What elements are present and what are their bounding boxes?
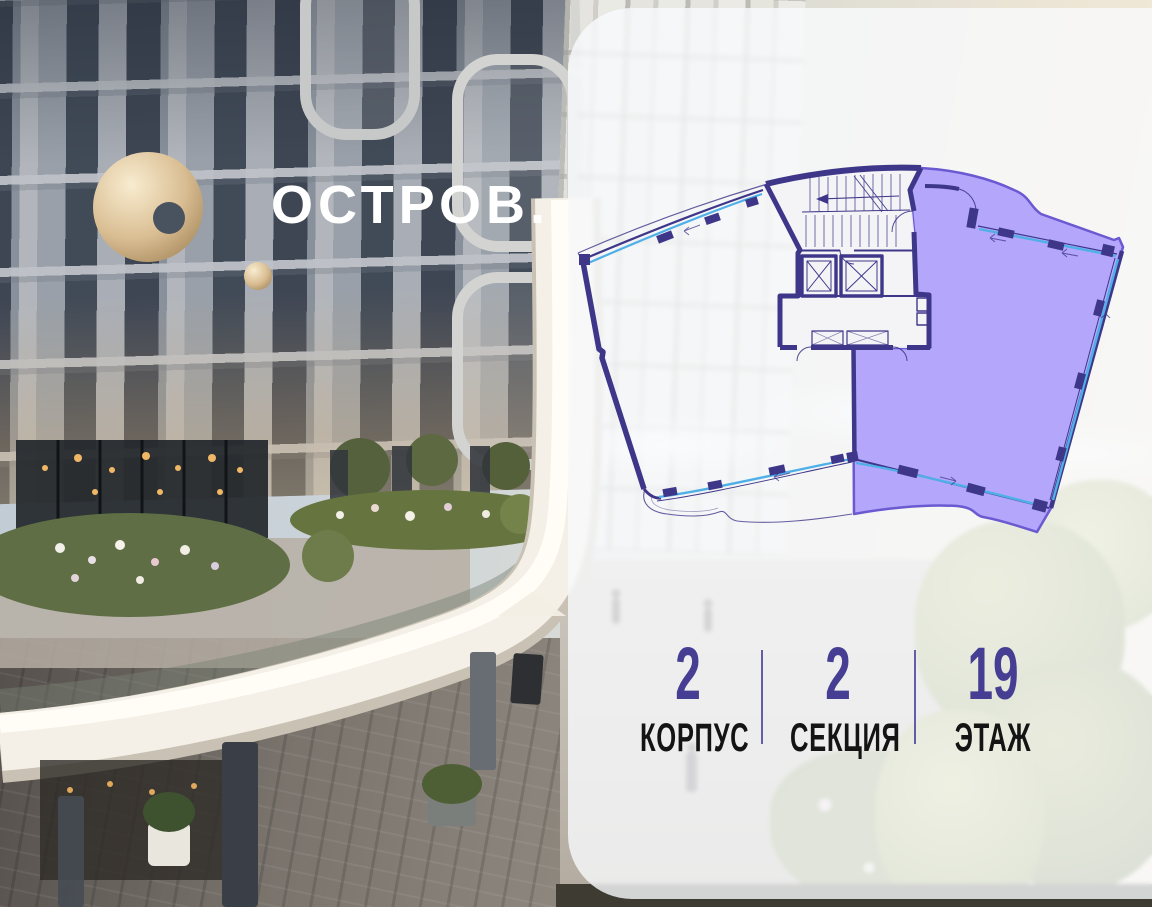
window-glazing <box>586 194 762 264</box>
core-floor <box>766 168 930 348</box>
screenshot-root: ОСТРОВ. <box>0 0 1152 907</box>
umbrella <box>498 592 566 616</box>
info-corpus: 2 КОРПУС <box>613 640 763 761</box>
logo-dot <box>244 262 272 290</box>
flowers <box>55 503 518 584</box>
topiary <box>302 530 354 582</box>
section-value: 2 <box>792 640 885 708</box>
flower-bed <box>0 513 290 617</box>
info-floor: 19 ЭТАЖ <box>918 640 1068 761</box>
brand-name: ОСТРОВ. <box>271 174 550 236</box>
brand-logo: ОСТРОВ. <box>83 148 543 278</box>
corpus-value: 2 <box>642 640 735 708</box>
info-section: 2 СЕКЦИЯ <box>763 640 913 761</box>
apartment-panel: 2 КОРПУС 2 СЕКЦИЯ 19 ЭТАЖ <box>568 8 1152 899</box>
floor-label: ЭТАЖ <box>945 716 1041 761</box>
floor-plan[interactable] <box>570 150 1152 570</box>
section-label: СЕКЦИЯ <box>790 716 886 761</box>
floor-value: 19 <box>947 640 1040 708</box>
unit-divider-wall <box>854 348 855 459</box>
left-outer-wall <box>583 262 644 489</box>
info-divider <box>914 650 916 744</box>
balcony-frame <box>300 0 420 140</box>
location-info: 2 КОРПУС 2 СЕКЦИЯ 19 ЭТАЖ <box>568 640 1152 760</box>
corpus-label: КОРПУС <box>640 716 736 761</box>
